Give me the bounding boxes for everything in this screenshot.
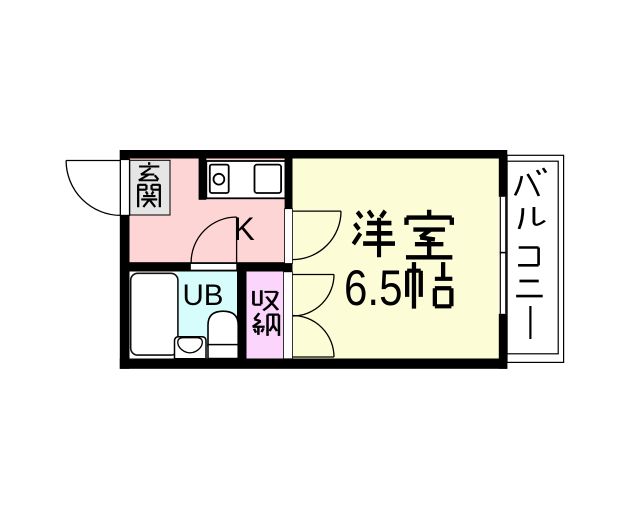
svg-text:UB: UB: [183, 279, 224, 312]
svg-text:6.5: 6.5: [344, 260, 403, 316]
svg-text:K: K: [233, 211, 254, 247]
